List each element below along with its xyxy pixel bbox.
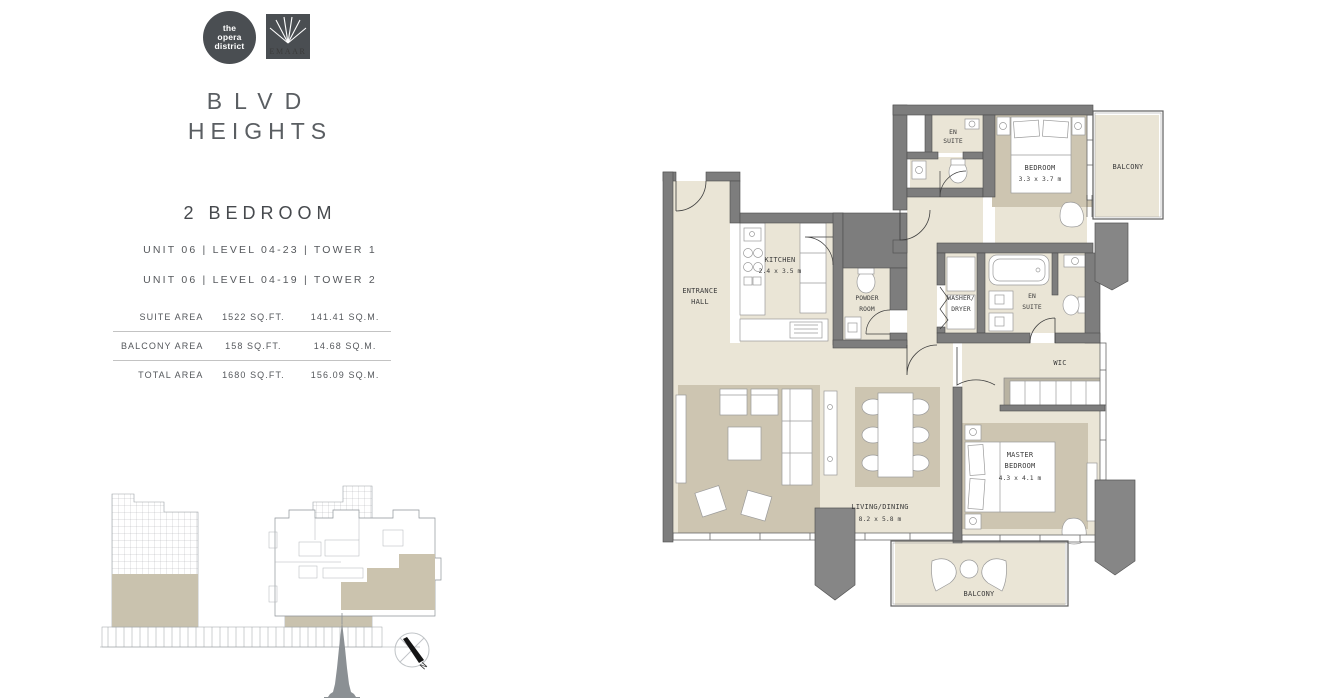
- entrance-label-2: HALL: [691, 298, 709, 306]
- living-label: LIVING/DINING: [851, 503, 908, 511]
- area-label: TOTAL AREA: [113, 370, 208, 380]
- area-table: SUITE AREA 1522 SQ.FT. 141.41 SQ.M. BALC…: [113, 303, 391, 389]
- area-sqm: 14.68 SQ.M.: [299, 341, 391, 351]
- locator-graphics: N: [100, 470, 445, 700]
- bedroom-label: BEDROOM: [1025, 164, 1056, 172]
- emaar-logo-text: EMAAR: [270, 47, 307, 56]
- kitchen-label: KITCHEN: [765, 256, 796, 264]
- podium: [100, 627, 420, 647]
- title-line1: BLVD: [155, 88, 365, 115]
- bedroom-dim: 3.3 x 3.7 m: [1019, 176, 1062, 183]
- sofa: [782, 389, 812, 485]
- console-table: [824, 391, 837, 475]
- project-title: BLVD HEIGHTS: [155, 88, 365, 145]
- washer-label-2: DRYER: [951, 306, 971, 313]
- washer-unit: [947, 257, 975, 291]
- table-row: BALCONY AREA 158 SQ.FT. 14.68 SQ.M.: [113, 332, 391, 360]
- master-label-1: MASTER: [1007, 451, 1034, 459]
- area-sqft: 1680 SQ.FT.: [208, 370, 300, 380]
- table-row: TOTAL AREA 1680 SQ.FT. 156.09 SQ.M.: [113, 361, 391, 389]
- master-label-2: BEDROOM: [1005, 462, 1036, 470]
- entrance-label-1: ENTRANCE: [682, 287, 717, 295]
- table-row: SUITE AREA 1522 SQ.FT. 141.41 SQ.M.: [113, 303, 391, 331]
- dining-set: [862, 393, 929, 477]
- unit-type-heading: 2 BEDROOM: [130, 203, 390, 224]
- wic-label: WIC: [1053, 359, 1066, 367]
- wic-closets: [1004, 378, 1105, 408]
- dining-table: [878, 393, 913, 477]
- emaar-logo: EMAAR: [266, 14, 310, 59]
- floor-plan: EN SUITE BEDROOM 3.3 x 3.7 m BALCONY ENT…: [640, 95, 1210, 640]
- powder-label-1: POWDER: [855, 295, 878, 302]
- emaar-sunburst-icon: EMAAR: [266, 14, 310, 59]
- balcony-bottom-label: BALCONY: [964, 590, 995, 598]
- unit-variant-1: UNIT 06 | LEVEL 04-23 | TOWER 1: [95, 244, 425, 256]
- title-line2: HEIGHTS: [155, 118, 365, 145]
- ensuite2-label-2: SUITE: [1022, 304, 1042, 311]
- area-sqft: 158 SQ.FT.: [208, 341, 300, 351]
- key-plan: [269, 510, 441, 616]
- ensuite1-label-1: EN: [949, 129, 957, 136]
- north-compass: N: [395, 633, 430, 672]
- washer-label-1: WASHER/: [947, 295, 974, 302]
- area-label: BALCONY AREA: [113, 341, 208, 351]
- area-sqft: 1522 SQ.FT.: [208, 312, 300, 322]
- kitchen-dim: 2.4 x 3.5 m: [759, 268, 802, 275]
- powder-label-2: ROOM: [859, 306, 875, 313]
- floorplan-brochure-page: the opera district EMAAR BLVD HEIGHTS 2: [0, 0, 1330, 700]
- tower1-highlight-levels: [112, 574, 198, 627]
- wc-toilet: [1063, 295, 1079, 315]
- tv-console: [676, 395, 686, 483]
- area-sqm: 141.41 SQ.M.: [299, 312, 391, 322]
- balcony-top-label: BALCONY: [1113, 163, 1144, 171]
- coffee-table: [728, 427, 761, 460]
- living-dim: 8.2 x 5.8 m: [859, 516, 902, 523]
- master-dim: 4.3 x 4.1 m: [999, 475, 1042, 482]
- opera-district-logo: the opera district: [203, 11, 256, 64]
- ensuite2-label-1: EN: [1028, 293, 1036, 300]
- area-sqm: 156.09 SQ.M.: [299, 370, 391, 380]
- balcony-table: [960, 560, 978, 578]
- brand-logos: the opera district EMAAR: [203, 11, 310, 64]
- compass-north-label: N: [419, 661, 430, 672]
- opera-logo-line3: district: [215, 42, 245, 51]
- unit-variant-2: UNIT 06 | LEVEL 04-19 | TOWER 2: [95, 274, 425, 286]
- ensuite1-label-2: SUITE: [943, 138, 963, 145]
- area-label: SUITE AREA: [113, 312, 208, 322]
